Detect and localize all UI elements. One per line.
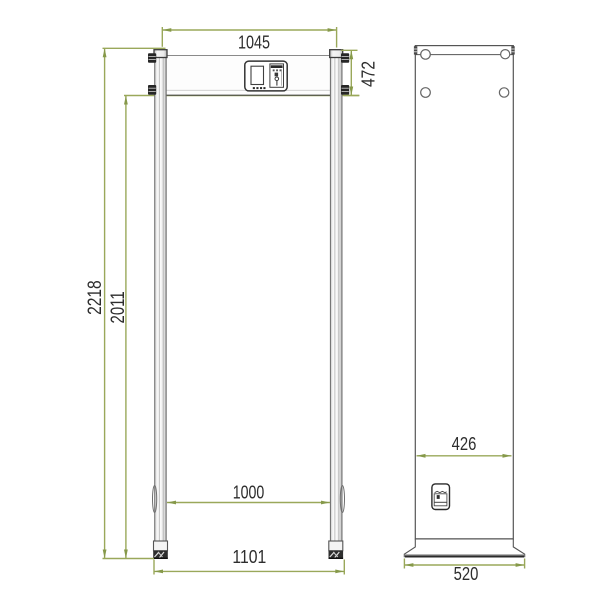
- svg-text:2218: 2218: [85, 280, 106, 315]
- svg-text:520: 520: [454, 563, 479, 584]
- svg-text:1000: 1000: [233, 481, 265, 502]
- svg-text:1045: 1045: [238, 31, 270, 52]
- svg-text:472: 472: [358, 61, 379, 87]
- svg-text:2011: 2011: [108, 291, 129, 323]
- svg-text:426: 426: [452, 433, 477, 454]
- svg-text:1101: 1101: [232, 546, 266, 567]
